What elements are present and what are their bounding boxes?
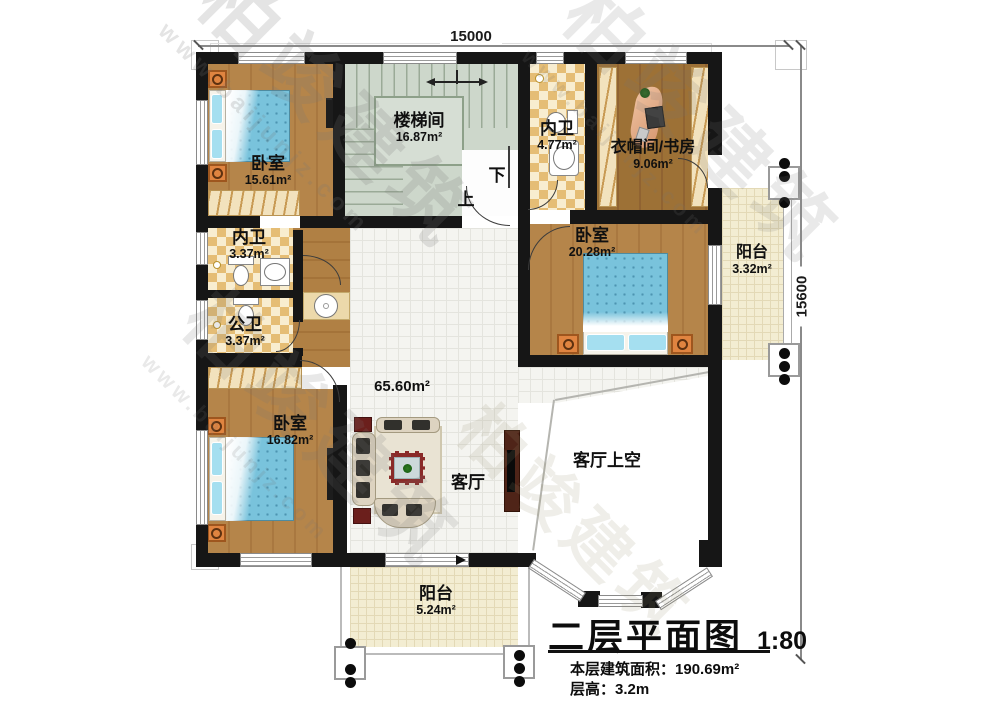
tv-living: [507, 450, 515, 492]
cloak-study-name: 衣帽间/书房: [611, 140, 695, 157]
sofa-left-cushion-3: [356, 482, 370, 498]
label-living-area: 65.60m²: [374, 378, 430, 395]
stair-arrow-left-icon: [426, 78, 435, 86]
study-plant: [640, 88, 650, 98]
wall-mid-h-3: [345, 216, 462, 228]
bay-window-right: [655, 567, 713, 610]
bedroom-bottomleft-wardrobe: [208, 367, 302, 389]
wall-bath-right-2: [293, 298, 303, 322]
living-name: 客厅: [451, 474, 485, 492]
floor-plan-canvas: 15000 15600 柏竣建筑 www.baijunjz.com 柏竣建筑 w…: [0, 0, 1000, 706]
sofa-bottom-cushion-1: [382, 504, 398, 516]
label-living-void: 客厅上空: [573, 452, 641, 470]
sofa-top-cushion-2: [412, 420, 430, 430]
window-top-study: [625, 52, 687, 64]
window-top-stair: [383, 52, 457, 64]
bed-bl-sheet: [226, 437, 262, 521]
label-living-name: 客厅: [451, 474, 485, 492]
light-bath-top: [535, 74, 544, 83]
window-top-bedroom: [238, 52, 305, 64]
bed-right-pillow-2: [628, 334, 667, 351]
bay-window-left: [528, 559, 586, 602]
label-bath-public: 公卫 3.37m²: [225, 316, 265, 349]
living-area-value: 65.60m²: [374, 378, 430, 395]
bed-right-sheet: [583, 312, 668, 332]
door-stair-lobby-leaf: [508, 146, 510, 188]
balcony-right-area: 3.32m²: [732, 262, 772, 277]
bedroom-topleft-wardrobe: [208, 190, 300, 216]
living-void-name: 客厅上空: [573, 452, 641, 470]
window-top-bath: [536, 52, 564, 64]
title-area-line: 本层建筑面积：190.69m²: [570, 658, 739, 679]
column-marker-balcony-right-bottom: [768, 343, 800, 377]
label-stairwell: 楼梯间 16.87m²: [394, 112, 445, 145]
sofa-bottom-cushion-2: [406, 504, 422, 516]
bay-wall-right: [699, 540, 722, 567]
nightstand-bl-1: [207, 417, 226, 435]
bed-right-pillow-1: [586, 334, 625, 351]
bath-mid-name: 内卫: [229, 229, 269, 247]
sliding-door-arrow-icon: [456, 555, 466, 565]
window-bedroom-right-balcony: [708, 245, 722, 305]
floor-height-value: 3.2m: [615, 681, 649, 698]
living-room-floor-sliver: [518, 367, 708, 403]
bedroom-tl-area: 15.61m²: [245, 173, 292, 188]
label-cloak-study: 衣帽间/书房 9.06m²: [611, 140, 695, 172]
label-bath-top: 内卫 4.77m²: [537, 120, 577, 153]
window-bottom-bedroom-bl: [240, 553, 312, 567]
bedroom-bl-area: 16.82m²: [267, 433, 314, 448]
towel-ring-bath-mid: [213, 261, 221, 269]
wall-bedroom-bl-right: [333, 385, 347, 553]
label-bath-mid: 内卫 3.37m²: [229, 229, 269, 262]
wall-bath-right-1: [293, 230, 303, 290]
study-monitor: [645, 106, 666, 129]
stair-up-mark: 上: [458, 185, 475, 210]
wall-right: [708, 52, 722, 567]
hall-basin-drain: [323, 303, 329, 309]
window-left-bedroom-tl: [196, 100, 208, 165]
towel-ring-bath-pub: [213, 321, 221, 329]
bed-bl-pillow-2: [211, 481, 223, 515]
nightstand-bl-2: [207, 524, 226, 542]
wall-bed-tl-stair: [333, 64, 345, 216]
nightstand-tl-2: [208, 164, 227, 182]
opening-balcony-right-door: [708, 155, 722, 188]
wall-bath-public-bottom: [196, 353, 302, 367]
wall-bedroom-right-left: [518, 228, 530, 367]
stair-arrow-tick: [456, 70, 458, 84]
bed-bl-pillow-1: [211, 442, 223, 476]
column-marker-balcony-bottom-left: [334, 646, 366, 680]
tv-bedroom-tl: [326, 98, 333, 128]
bedroom-tl-name: 卧室: [245, 155, 292, 173]
toilet-bath-mid-bowl: [233, 265, 249, 286]
bed-tl-pillow-1: [211, 94, 223, 124]
bed-tl-sheet: [226, 90, 260, 162]
living-table-plant: [403, 464, 412, 473]
wall-bath-right-3: [293, 348, 303, 356]
wall-bath-study: [585, 64, 597, 210]
bath-public-name: 公卫: [225, 316, 265, 334]
bath-top-area: 4.77m²: [537, 138, 577, 153]
dimension-line-top: [198, 45, 790, 47]
label-balcony-right: 阳台 3.32m²: [732, 245, 772, 277]
bedroom-bl-name: 卧室: [267, 415, 314, 433]
bed-tl-pillow-2: [211, 129, 223, 159]
label-bedroom-tl: 卧室 15.61m²: [245, 155, 292, 188]
stairwell-name: 楼梯间: [394, 112, 445, 130]
wall-mid-h-1: [196, 216, 260, 228]
label-bedroom-bl: 卧室 16.82m²: [267, 415, 314, 448]
side-table-2: [353, 508, 371, 524]
cloak-study-area: 9.06m²: [611, 157, 695, 172]
column-marker-balcony-bottom-right: [503, 645, 535, 679]
sofa-left-cushion-2: [356, 460, 370, 476]
bedroom-right-name: 卧室: [569, 227, 616, 245]
balcony-right-name: 阳台: [732, 245, 772, 262]
stairwell-area: 16.87m²: [394, 130, 445, 145]
bath-top-name: 内卫: [537, 120, 577, 138]
wall-bath-divider: [208, 290, 303, 298]
dimension-top-value: 15000: [440, 28, 502, 45]
dimension-right-value: 15600: [794, 267, 811, 327]
balcony-bottom-area: 5.24m²: [416, 603, 456, 618]
title-height-line: 层高：3.2m: [570, 678, 649, 699]
window-left-bedroom-bl: [196, 430, 208, 525]
nightstand-right-1: [557, 334, 579, 354]
cloak-study-wardrobe-left: [599, 67, 617, 207]
sofa-top-cushion-1: [384, 420, 402, 430]
window-left-bath-mid: [196, 232, 208, 265]
label-balcony-bottom: 阳台 5.24m²: [416, 585, 456, 618]
title-underline: [548, 650, 770, 653]
balcony-bottom-name: 阳台: [416, 585, 456, 603]
bedroom-right-area: 20.28m²: [569, 245, 616, 260]
sofa-left-cushion-1: [356, 438, 370, 454]
bath-mid-area: 3.37m²: [229, 247, 269, 262]
floor-area-label: 本层建筑面积：: [570, 661, 675, 678]
bay-window-center: [598, 595, 643, 607]
stair-arrow-right-icon: [479, 78, 488, 86]
window-left-bath-pub: [196, 300, 208, 340]
stair-down-mark: 下: [489, 161, 506, 186]
void-boundary-left: [533, 400, 555, 551]
floor-height-label: 层高：: [570, 681, 615, 698]
floor-area-value: 190.69m²: [675, 661, 739, 678]
column-marker-balcony-right-top: [768, 166, 800, 200]
nightstand-tl-1: [208, 70, 227, 88]
wall-mid-h-4: [570, 210, 722, 224]
wall-mid-h-2: [300, 216, 345, 228]
nightstand-right-2: [671, 334, 693, 354]
wall-bedroom-right-bottom: [518, 355, 722, 367]
side-table-1: [354, 417, 372, 432]
sink-bath-mid-basin: [264, 263, 286, 281]
label-bedroom-right: 卧室 20.28m²: [569, 227, 616, 260]
bath-public-area: 3.37m²: [225, 334, 265, 349]
dimension-line-right: [800, 45, 802, 660]
